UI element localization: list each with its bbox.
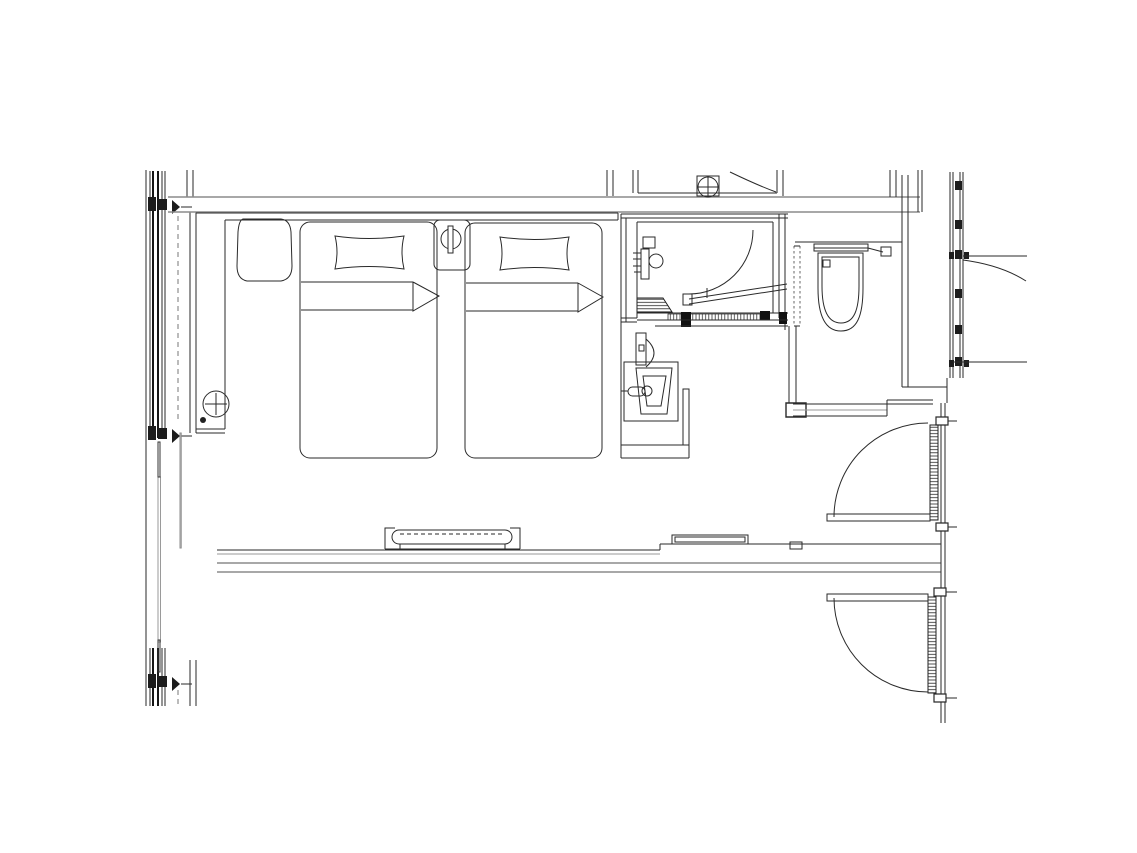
armchair xyxy=(237,219,292,281)
right-window xyxy=(949,172,1027,378)
floor-plan-canvas xyxy=(0,0,1137,853)
corridor-wall xyxy=(217,563,941,572)
toilet-partition xyxy=(794,246,800,326)
vanity-wall xyxy=(786,326,806,417)
shower-door xyxy=(683,230,787,305)
window-sill-ledge xyxy=(196,220,225,433)
left-curtain-wall xyxy=(146,170,196,706)
shower-threshold xyxy=(621,311,788,327)
lower-room-door xyxy=(827,594,936,693)
shower-bench xyxy=(637,298,672,312)
toilet xyxy=(814,244,891,331)
entry-mat xyxy=(672,535,748,544)
right-wall-upper xyxy=(902,175,947,403)
duvet-fold-1 xyxy=(301,282,439,311)
entry-door xyxy=(827,423,938,521)
entry-wall xyxy=(793,400,933,416)
party-wall xyxy=(168,197,920,212)
table-lamp xyxy=(441,226,461,253)
vanity xyxy=(621,330,689,458)
duvet-fold-2 xyxy=(466,283,603,312)
column xyxy=(158,433,181,672)
bed-2 xyxy=(465,223,602,458)
adjacent-room-upper xyxy=(607,170,922,212)
pillow-2 xyxy=(500,237,569,270)
door-stop xyxy=(790,542,802,549)
bed-1 xyxy=(300,222,437,458)
lower-wall xyxy=(217,544,941,554)
luggage-rack xyxy=(385,528,520,549)
floor-plan-svg xyxy=(0,0,1137,853)
pillow-1 xyxy=(335,236,404,269)
